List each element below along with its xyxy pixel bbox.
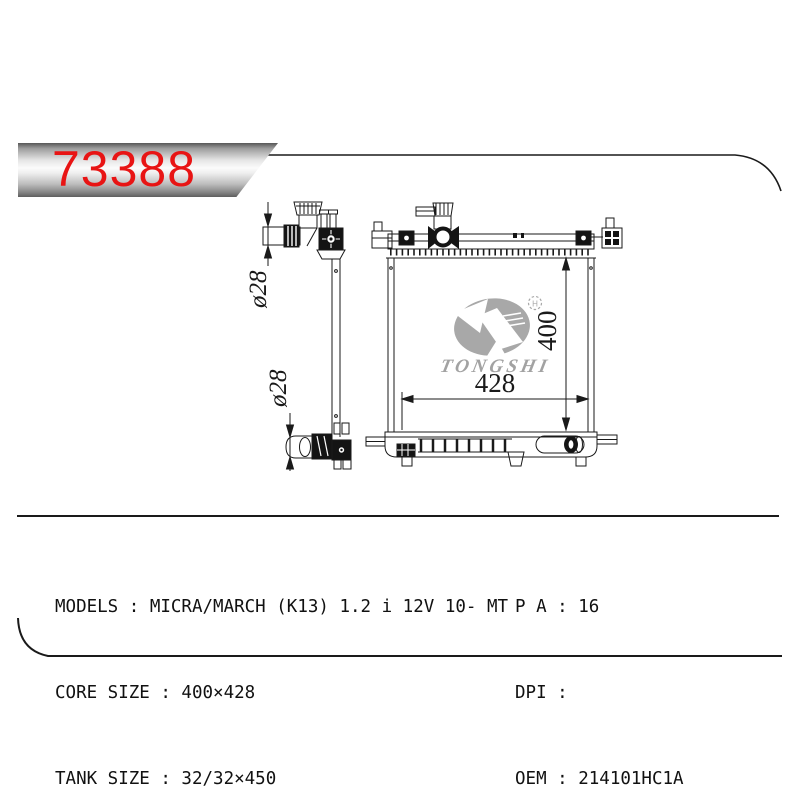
spec-dpi-line: DPI : [515,679,684,708]
part-number-text: 73388 [52,140,244,198]
dim-side-top-pipe: ø28 [245,202,272,309]
catalog-page: ø28 ø28 [0,0,800,800]
dim-label-side-top-pipe: ø28 [245,270,272,309]
front-right-mount-pin [606,218,614,228]
dim-label-core-height: 400 [532,311,562,352]
front-filler-clamp [435,229,452,246]
front-bottom-tank [366,432,617,466]
top-border-line [263,155,781,191]
part-number-banner: 73388 [18,143,278,197]
spec-models-line: MODELS : MICRA/MARCH (K13) 1.2 i 12V 10-… [55,593,508,622]
front-drain-tab [508,452,524,466]
spec-core-size-line: CORE SIZE : 400×428 [55,679,508,708]
watermark-brand-text: TONGSHI [438,356,552,377]
spec-oem-line: OEM : 214101HC1A [515,765,684,794]
spec-pa-line: P A : 16 [515,593,684,622]
side-bottom-hose-ribs [312,434,332,459]
dim-core-width: 428 [402,368,588,430]
front-left-mount-pin [374,222,382,231]
side-filler-neck [299,215,317,228]
dim-label-side-bottom-pipe: ø28 [265,369,292,408]
specs-left-column: MODELS : MICRA/MARCH (K13) 1.2 i 12V 10-… [55,536,508,800]
dim-core-height: 400 [532,258,570,430]
specs-right-column: P A : 16 DPI : OEM : 214101HC1A NISSENS:… [515,536,684,800]
side-view-drawing: ø28 ø28 [245,202,351,471]
spec-tank-size-line: TANK SIZE : 32/32×450 [55,765,508,794]
registered-mark-letter: H [532,300,538,309]
